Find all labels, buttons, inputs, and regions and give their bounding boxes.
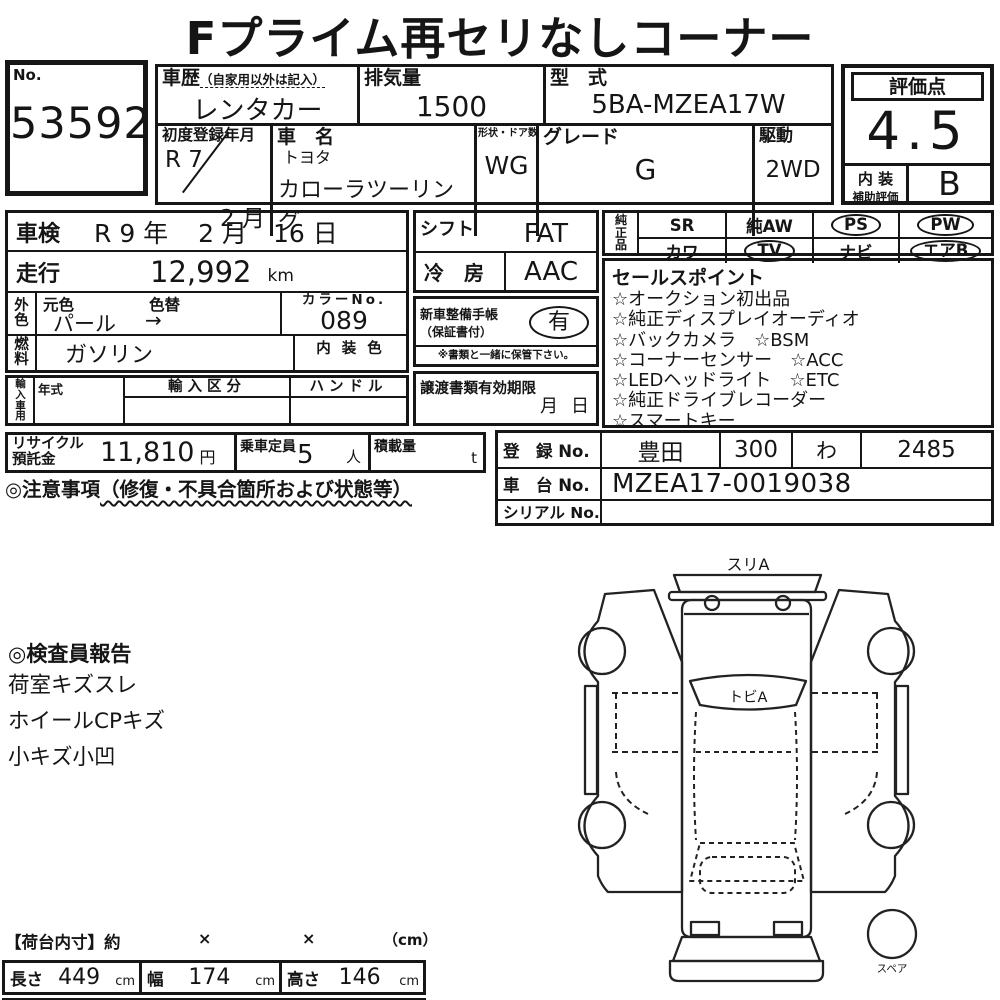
cargo-height-cell: 高さ 146 cm bbox=[282, 963, 423, 992]
car-body-outline bbox=[682, 600, 811, 937]
genuine-parts-box: 純正品 SR 純AW PS PW カワ TV ナビ エアB bbox=[602, 210, 994, 256]
recycle-label-line1: リサイクル bbox=[12, 437, 100, 452]
sales-points-box: セールスポイント ☆オークション初出品 ☆純正ディスプレイオーディオ ☆バックカ… bbox=[602, 258, 994, 428]
first-registration-label: 初度登録年月 bbox=[158, 126, 270, 145]
color-number-value: 089 bbox=[282, 308, 406, 334]
car-damage-diagram: スリA トビA スペア bbox=[558, 550, 958, 998]
seating-capacity-unit: 人 bbox=[346, 446, 361, 467]
power-steering-circled: PS bbox=[831, 214, 881, 236]
car-name-label: 車 名 bbox=[273, 126, 474, 149]
transfer-docs-label: 譲渡書類有効期限 bbox=[416, 374, 596, 401]
caution-note: （修復・不具合箇所および状態等） bbox=[100, 478, 412, 501]
book-present-mark: 有 bbox=[529, 306, 589, 339]
color-value: パール bbox=[53, 308, 116, 338]
caution-title: ◎注意事項 bbox=[5, 478, 100, 501]
sales-point-item: ☆オークション初出品 bbox=[612, 290, 984, 310]
body-type-label: 形状・ドア数 bbox=[477, 126, 536, 141]
mileage-unit: km bbox=[267, 266, 293, 286]
left-fender-curve-dashed bbox=[616, 772, 648, 814]
seating-capacity-label: 乗車定員 bbox=[240, 436, 296, 456]
cargo-length-cell: 長さ 449 cm bbox=[5, 963, 142, 992]
fuel-value: ガソリン bbox=[37, 337, 153, 369]
handle-label: ハンドル bbox=[291, 378, 406, 398]
power-window-circled: PW bbox=[917, 214, 973, 236]
hood-circle-left bbox=[705, 596, 719, 610]
model-year-label: 年式 bbox=[35, 378, 123, 399]
registration-table: 登 録 No. 豊田 300 わ 2485 車 台 No. MZEA17-001… bbox=[495, 430, 994, 526]
history-cell: 車歴（自家用以外は記入） レンタカー bbox=[158, 67, 360, 123]
front-bumper-outline bbox=[674, 575, 821, 592]
interior-rating-label: 内 装 補助評価 bbox=[845, 166, 909, 205]
rear-left-wheel bbox=[579, 802, 625, 848]
import-vehicle-table: 輸入車用 年式 輸入区分 ハンドル bbox=[5, 375, 409, 426]
vehicle-info-table: 車歴（自家用以外は記入） レンタカー 排気量 1500 型 式 5BA-MZEA… bbox=[155, 64, 834, 205]
exterior-color-row: 外色 元色 色替 パール → カラーNo. 089 bbox=[8, 293, 406, 336]
interior-rating-value: B bbox=[909, 166, 990, 205]
recycle-capacity-row: リサイクル 預託金 11,810 円 乗車定員 5 人 積載量 t bbox=[5, 432, 486, 473]
interior-label-line2: 補助評価 bbox=[845, 189, 906, 205]
mileage-row: 走行 12,992 km bbox=[8, 252, 406, 293]
registration-class: 300 bbox=[721, 433, 793, 467]
shift-ac-box: シフト FAT 冷 房 AAC bbox=[413, 210, 599, 293]
recycle-deposit-cell: リサイクル 預託金 11,810 円 bbox=[8, 435, 237, 470]
history-label: 車歴 bbox=[162, 67, 200, 89]
body-type-value: WG bbox=[477, 151, 536, 180]
rating-score-label: 評価点 bbox=[851, 72, 984, 101]
cargo-times-1: × bbox=[198, 929, 211, 948]
sales-point-item: ☆LEDヘッドライト ☆ETC bbox=[612, 371, 984, 391]
drive-value: 2WD bbox=[755, 157, 831, 183]
rear-bumper-lip bbox=[670, 961, 823, 981]
genuine-parts-grid: SR 純AW PS PW カワ TV ナビ エアB bbox=[639, 213, 991, 253]
front-right-wheel bbox=[868, 628, 914, 674]
load-capacity-unit: t bbox=[471, 449, 477, 467]
spec-table: 車検 R 9 年 2 月 16 日 走行 12,992 km 外色 元色 色替 … bbox=[5, 210, 409, 373]
color-detail-cell: 元色 色替 パール → bbox=[37, 293, 282, 334]
model-code-value: 5BA-MZEA17W bbox=[546, 90, 831, 120]
cargo-width-value: 174 bbox=[164, 965, 256, 990]
lot-number-value: 53592 bbox=[10, 99, 143, 149]
front-bumper-lip bbox=[669, 592, 826, 600]
front-damage-label: スリA bbox=[727, 555, 770, 574]
ac-label: 冷 房 bbox=[416, 253, 506, 290]
model-code-cell: 型 式 5BA-MZEA17W bbox=[546, 67, 831, 123]
model-year-cell: 年式 bbox=[35, 378, 125, 423]
roof-edge-right-dashed bbox=[795, 712, 797, 840]
ac-row: 冷 房 AAC bbox=[416, 253, 596, 290]
rear-right-wheel bbox=[868, 802, 914, 848]
lot-number-box: No. 53592 bbox=[5, 60, 148, 196]
inspector-report: ◎検査員報告 荷室キズスレ ホイールCPキズ 小キズ小凹 bbox=[8, 638, 165, 776]
handle-cell: ハンドル bbox=[291, 378, 406, 423]
tail-light-left bbox=[691, 922, 719, 935]
cargo-length-value: 449 bbox=[43, 965, 115, 990]
recycle-amount: 11,810 bbox=[100, 437, 194, 468]
power-window-cell: PW bbox=[900, 213, 991, 237]
maintenance-book-label: 新車整備手帳 bbox=[420, 304, 498, 323]
cargo-unit-header: （cm） bbox=[383, 929, 438, 950]
chassis-number-row: 車 台 No. MZEA17-0019038 bbox=[498, 469, 991, 501]
rating-box: 評価点 4.5 内 装 補助評価 B bbox=[841, 64, 994, 205]
ac-value: AAC bbox=[506, 257, 596, 287]
cargo-height-label: 高さ bbox=[282, 966, 320, 990]
inspection-row: 車検 R 9 年 2 月 16 日 bbox=[8, 213, 406, 252]
transfer-month-label: 月 bbox=[540, 392, 558, 418]
exterior-color-label: 外色 bbox=[8, 293, 37, 334]
inspection-day: 16 日 bbox=[273, 214, 338, 250]
seating-capacity-value: 5 bbox=[297, 440, 314, 470]
rear-bumper-outline bbox=[673, 937, 820, 961]
hood-circle-right bbox=[776, 596, 790, 610]
shift-label: シフト bbox=[416, 213, 596, 243]
alloy-wheel-cell: 純AW bbox=[727, 213, 814, 237]
cargo-length-label: 長さ bbox=[5, 966, 43, 990]
inspector-report-line: 小キズ小凹 bbox=[8, 740, 165, 776]
cargo-width-unit: cm bbox=[255, 974, 279, 989]
registration-number-label: 登 録 No. bbox=[498, 433, 602, 467]
sales-points-title: セールスポイント bbox=[612, 263, 984, 290]
import-class-label: 輸入区分 bbox=[125, 378, 289, 398]
recycle-label-line2: 預託金 bbox=[12, 453, 100, 468]
color-number-cell: カラーNo. 089 bbox=[282, 293, 406, 334]
cargo-height-unit: cm bbox=[399, 974, 423, 989]
mileage-value: 12,992 bbox=[150, 255, 251, 289]
displacement-value: 1500 bbox=[360, 90, 543, 123]
tailgate-opening-dashed bbox=[700, 857, 795, 893]
inspection-month: 2 月 bbox=[198, 214, 247, 250]
registration-serial: 2485 bbox=[862, 433, 991, 467]
spare-tire bbox=[868, 910, 916, 958]
front-left-wheel bbox=[579, 628, 625, 674]
cargo-width-label: 幅 bbox=[142, 966, 164, 990]
vehicle-table-row1: 車歴（自家用以外は記入） レンタカー 排気量 1500 型 式 5BA-MZEA… bbox=[158, 67, 831, 126]
registration-number-row: 登 録 No. 豊田 300 わ 2485 bbox=[498, 433, 991, 469]
cargo-height-value: 146 bbox=[320, 965, 399, 990]
cargo-dims-header: 【荷台内寸】約 bbox=[5, 929, 121, 953]
drive-label: 駆動 bbox=[755, 126, 831, 147]
cargo-dimensions-table: 長さ 449 cm 幅 174 cm 高さ 146 cm bbox=[2, 960, 426, 995]
left-rocker-panel bbox=[585, 686, 597, 794]
load-capacity-cell: 積載量 t bbox=[371, 435, 483, 470]
genuine-parts-label: 純正品 bbox=[605, 213, 639, 253]
registration-kana: わ bbox=[793, 433, 862, 467]
interior-color-cell: 内 装 色 bbox=[293, 336, 406, 370]
spare-tire-label: スペア bbox=[877, 963, 908, 975]
displacement-cell: 排気量 1500 bbox=[360, 67, 546, 123]
fuel-label: 燃料 bbox=[8, 336, 37, 370]
interior-label-line1: 内 装 bbox=[845, 168, 906, 189]
recycle-unit: 円 bbox=[199, 444, 215, 468]
power-steering-cell: PS bbox=[814, 213, 900, 237]
sales-point-item: ☆純正ディスプレイオーディオ bbox=[612, 310, 984, 330]
sales-point-item: ☆純正ドライブレコーダー bbox=[612, 391, 984, 411]
first-registration-year: R 7 bbox=[165, 147, 203, 173]
mileage-label: 走行 bbox=[8, 256, 94, 288]
lot-number-label: No. bbox=[10, 65, 143, 85]
inspector-report-line: 荷室キズスレ bbox=[8, 668, 165, 704]
serial-number-row: シリアル No. bbox=[498, 501, 991, 523]
sales-point-item: ☆コーナーセンサー ☆ACC bbox=[612, 351, 984, 371]
tail-light-right bbox=[774, 922, 802, 935]
registration-area: 豊田 bbox=[602, 433, 721, 467]
grade-value: G bbox=[539, 153, 752, 186]
shift-row: シフト FAT bbox=[416, 213, 596, 253]
caution-heading: ◎注意事項（修復・不具合箇所および状態等） bbox=[5, 473, 412, 502]
chassis-number-value: MZEA17-0019038 bbox=[602, 469, 991, 499]
auction-corner-title: Fプライム再セリなしコーナー bbox=[0, 2, 1000, 67]
load-capacity-label: 積載量 bbox=[374, 436, 416, 456]
cargo-times-2: × bbox=[302, 929, 315, 948]
serial-number-value bbox=[602, 501, 991, 523]
grade-label: グレード bbox=[539, 126, 752, 149]
interior-color-label: 内 装 色 bbox=[295, 336, 406, 358]
shift-value: FAT bbox=[524, 219, 568, 249]
genuine-row-1: SR 純AW PS PW bbox=[639, 213, 991, 239]
sunroof-cell: SR bbox=[639, 213, 727, 237]
right-rocker-panel bbox=[896, 686, 908, 794]
history-value: レンタカー bbox=[158, 90, 357, 127]
serial-number-label: シリアル No. bbox=[498, 501, 602, 523]
warranty-label: （保証書付） bbox=[420, 323, 498, 340]
seating-capacity-cell: 乗車定員 5 人 bbox=[237, 435, 371, 470]
inspection-year: R 9 年 bbox=[94, 214, 168, 250]
transfer-docs-box: 譲渡書類有効期限 月 日 bbox=[413, 371, 599, 426]
chassis-number-label: 車 台 No. bbox=[498, 469, 602, 499]
keep-with-documents-note: ※書類と一緒に保管下さい。 bbox=[416, 345, 596, 364]
history-note: （自家用以外は記入） bbox=[200, 72, 325, 88]
roof-edge-left-dashed bbox=[694, 712, 696, 840]
windshield-damage-label: トビA bbox=[729, 689, 768, 706]
cargo-width-cell: 幅 174 cm bbox=[142, 963, 282, 992]
model-code-label: 型 式 bbox=[546, 67, 831, 90]
maker-value: トヨタ bbox=[283, 149, 474, 167]
maintenance-book-box: 新車整備手帳 （保証書付） 有 ※書類と一緒に保管下さい。 bbox=[413, 296, 599, 367]
sales-point-item: ☆バックカメラ ☆BSM bbox=[612, 331, 984, 351]
inspector-report-line: ホイールCPキズ bbox=[8, 704, 165, 740]
import-class-cell: 輸入区分 bbox=[125, 378, 291, 423]
rating-score-value: 4.5 bbox=[845, 101, 990, 163]
color-change-arrow: → bbox=[145, 308, 162, 332]
inspector-report-title: ◎検査員報告 bbox=[8, 638, 165, 668]
fuel-row: 燃料 ガソリン 内 装 色 bbox=[8, 336, 406, 370]
transfer-day-label: 日 bbox=[571, 392, 589, 418]
maintenance-book-row: 新車整備手帳 （保証書付） 有 bbox=[416, 299, 596, 345]
interior-rating-row: 内 装 補助評価 B bbox=[845, 163, 990, 205]
inspection-label: 車検 bbox=[8, 216, 94, 248]
displacement-label: 排気量 bbox=[360, 67, 543, 90]
import-vehicle-label: 輸入車用 bbox=[8, 378, 35, 423]
cargo-length-unit: cm bbox=[115, 974, 139, 989]
rear-window-dashed bbox=[690, 843, 804, 881]
right-fender-curve-dashed bbox=[845, 772, 877, 814]
